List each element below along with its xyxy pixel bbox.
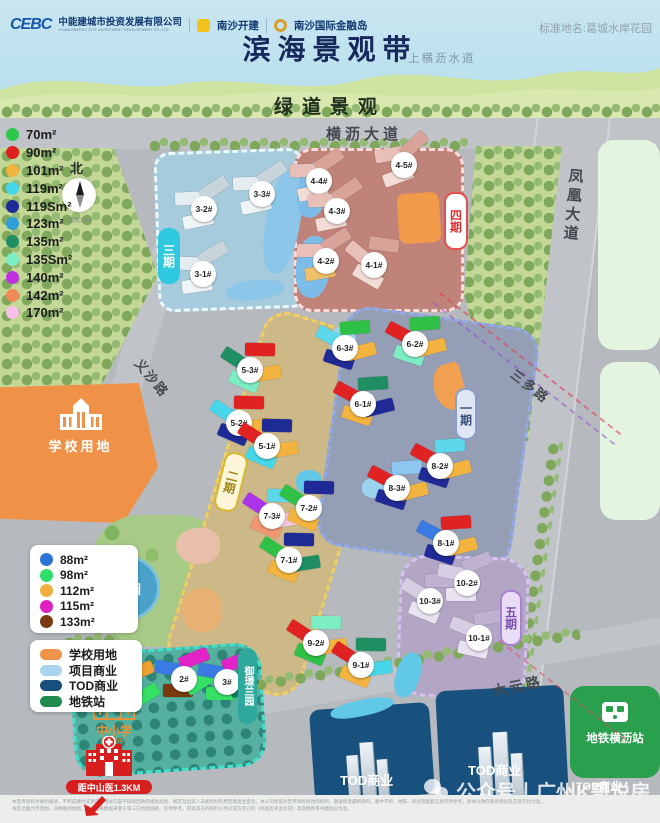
- unit-block: [368, 236, 400, 253]
- unit-block: [340, 320, 371, 335]
- building-label: 9-1#: [348, 652, 374, 678]
- hospital-icon: [86, 736, 132, 776]
- legend-item: 88m²: [40, 552, 138, 568]
- legend-swatch: [6, 235, 19, 248]
- legend-label: 88m²: [60, 553, 88, 567]
- page-title: 滨海景观带: [0, 28, 660, 68]
- legend-swatch: [40, 600, 53, 613]
- building-label: 6-1#: [350, 391, 376, 417]
- school-building-icon: [56, 398, 106, 432]
- building-marker: 7-1#: [254, 527, 324, 597]
- unit-block: [441, 515, 472, 530]
- legend-swatch: [6, 217, 19, 230]
- compass-needle-north: [76, 181, 84, 195]
- legend-item: 98m²: [40, 568, 138, 584]
- legend-item: 119Sm²: [6, 197, 72, 215]
- legend-item: 135m²: [6, 233, 72, 251]
- legend-label: 112m²: [60, 584, 94, 598]
- legend-label: 119Sm²: [26, 199, 72, 214]
- legend-swatch: [40, 696, 62, 707]
- tod-label-west: TOD商业: [340, 770, 393, 789]
- phase3-pill: 三期: [158, 228, 180, 284]
- legend-swatch: [40, 649, 62, 660]
- legend-item: 90m²: [6, 144, 72, 162]
- legend-label: 地铁站: [69, 693, 105, 710]
- legend-label: 133m²: [60, 615, 95, 629]
- building-label: 7-2#: [296, 495, 322, 521]
- legend-item: 133m²: [40, 614, 138, 630]
- legend-item: 101m²: [6, 162, 72, 180]
- unit-block: [304, 481, 334, 495]
- legend-label: 140m²: [26, 270, 64, 285]
- legend-swatch: [6, 253, 19, 266]
- estate-name-pill: 御璟兰园: [238, 648, 257, 724]
- legend-item: 学校用地: [40, 647, 142, 663]
- legend-label: 170m²: [26, 305, 64, 320]
- hospital-distance-badge: 距中山医1.3KM: [66, 780, 152, 794]
- building-label: 5-3#: [237, 357, 263, 383]
- legend-item: 115m²: [40, 599, 138, 615]
- building-label: 6-2#: [402, 331, 428, 357]
- legend-item: 119m²: [6, 179, 72, 197]
- building-label: 3-1#: [190, 261, 216, 287]
- legend-label: 70m²: [26, 127, 56, 142]
- legend-item: TOD商业: [40, 678, 142, 694]
- legend-item: 135Sm²: [6, 251, 72, 269]
- building-label: 4-5#: [391, 152, 417, 178]
- building-label: 3#: [214, 669, 240, 695]
- legend-swatch: [6, 146, 19, 159]
- legend-item: 项目商业: [40, 663, 142, 679]
- unit-block: [435, 438, 466, 453]
- unit-block: [234, 396, 264, 410]
- building-label: 10-1#: [466, 625, 492, 651]
- legend-item: 170m²: [6, 304, 72, 322]
- legend-item: 123m²: [6, 215, 72, 233]
- legend-label: TOD商业: [69, 677, 118, 694]
- legend-estate-units: 88m²98m²112m²115m²133m²: [30, 545, 138, 633]
- building-label: 3-3#: [249, 181, 275, 207]
- legend-label: 90m²: [26, 145, 56, 160]
- building-marker: 4-1#: [339, 232, 409, 302]
- legend-label: 学校用地: [69, 646, 117, 663]
- legend-unit-types: 70m²90m²101m²119m²119Sm²123m²135m²135Sm²…: [6, 126, 72, 322]
- building-label: 5-1#: [254, 433, 280, 459]
- legend-swatch: [6, 306, 19, 319]
- legend-land-use: 学校用地项目商业TOD商业地铁站: [30, 640, 142, 712]
- legend-swatch: [6, 128, 19, 141]
- phase5-pill: 五期: [500, 590, 522, 646]
- building-label: 6-3#: [332, 335, 358, 361]
- building-marker: 6-1#: [328, 371, 398, 441]
- legend-swatch: [40, 615, 53, 628]
- building-label: 4-2#: [313, 248, 339, 274]
- legend-label: 98m²: [60, 568, 88, 582]
- legend-swatch: [40, 553, 53, 566]
- legend-label: 135m²: [26, 234, 64, 249]
- building-marker: 9-1#: [326, 632, 396, 702]
- legend-swatch: [6, 164, 19, 177]
- legend-label: 142m²: [26, 288, 64, 303]
- unit-block: [284, 533, 314, 547]
- unit-block: [410, 316, 441, 331]
- legend-item: 70m²: [6, 126, 72, 144]
- unit-block: [262, 419, 292, 433]
- road-label-hengli: 横沥大道: [326, 123, 402, 144]
- site-plan-map: 学校用地 公园 3-3#3-2#3-1#4-5#4-4#4-3#4-2#4-1#…: [0, 0, 660, 823]
- legend-swatch: [6, 289, 19, 302]
- phase4-pill: 四期: [444, 192, 468, 250]
- unit-block: [358, 376, 389, 391]
- legend-swatch: [6, 200, 19, 213]
- legend-label: 项目商业: [69, 662, 117, 679]
- building-label: 7-1#: [276, 547, 302, 573]
- building-label: 10-2#: [454, 570, 480, 596]
- building-label: 4-1#: [361, 252, 387, 278]
- legend-item: 142m²: [6, 286, 72, 304]
- legend-swatch: [6, 271, 19, 284]
- legend-label: 119m²: [26, 181, 63, 196]
- legend-item: 地铁站: [40, 694, 142, 710]
- legend-swatch: [40, 569, 53, 582]
- legend-label: 123m²: [26, 216, 64, 231]
- compass-needle-south: [76, 195, 84, 208]
- legend-swatch: [40, 665, 62, 676]
- legend-item: 112m²: [40, 583, 138, 599]
- legend-swatch: [40, 584, 53, 597]
- school-land-label: 学校用地: [28, 436, 133, 455]
- legend-label: 115m²: [60, 599, 94, 613]
- building-label: 4-3#: [324, 198, 350, 224]
- building-label: 8-2#: [427, 453, 453, 479]
- unit-block: [245, 343, 275, 357]
- legend-label: 135Sm²: [26, 252, 72, 267]
- unit-block: [311, 616, 341, 630]
- waterway-label: 上横沥水道: [408, 50, 476, 66]
- legend-swatch: [6, 182, 19, 195]
- phase1-pill: 一期: [455, 388, 477, 440]
- greenway-label: 绿道景观: [0, 92, 660, 119]
- building-label: 3-2#: [191, 196, 217, 222]
- legend-item: 140m²: [6, 268, 72, 286]
- unit-block: [356, 638, 386, 652]
- developer-name: 中能建城市投资发展有限公司: [58, 18, 182, 28]
- legend-label: 101m²: [26, 163, 64, 178]
- legend-swatch: [40, 680, 62, 691]
- arrow-down-left-icon: [82, 794, 108, 820]
- building-marker: 8-2#: [405, 433, 475, 503]
- header: CEBC 中能建城市投资发展有限公司 CHINA ENERGY CITY INV…: [0, 0, 660, 118]
